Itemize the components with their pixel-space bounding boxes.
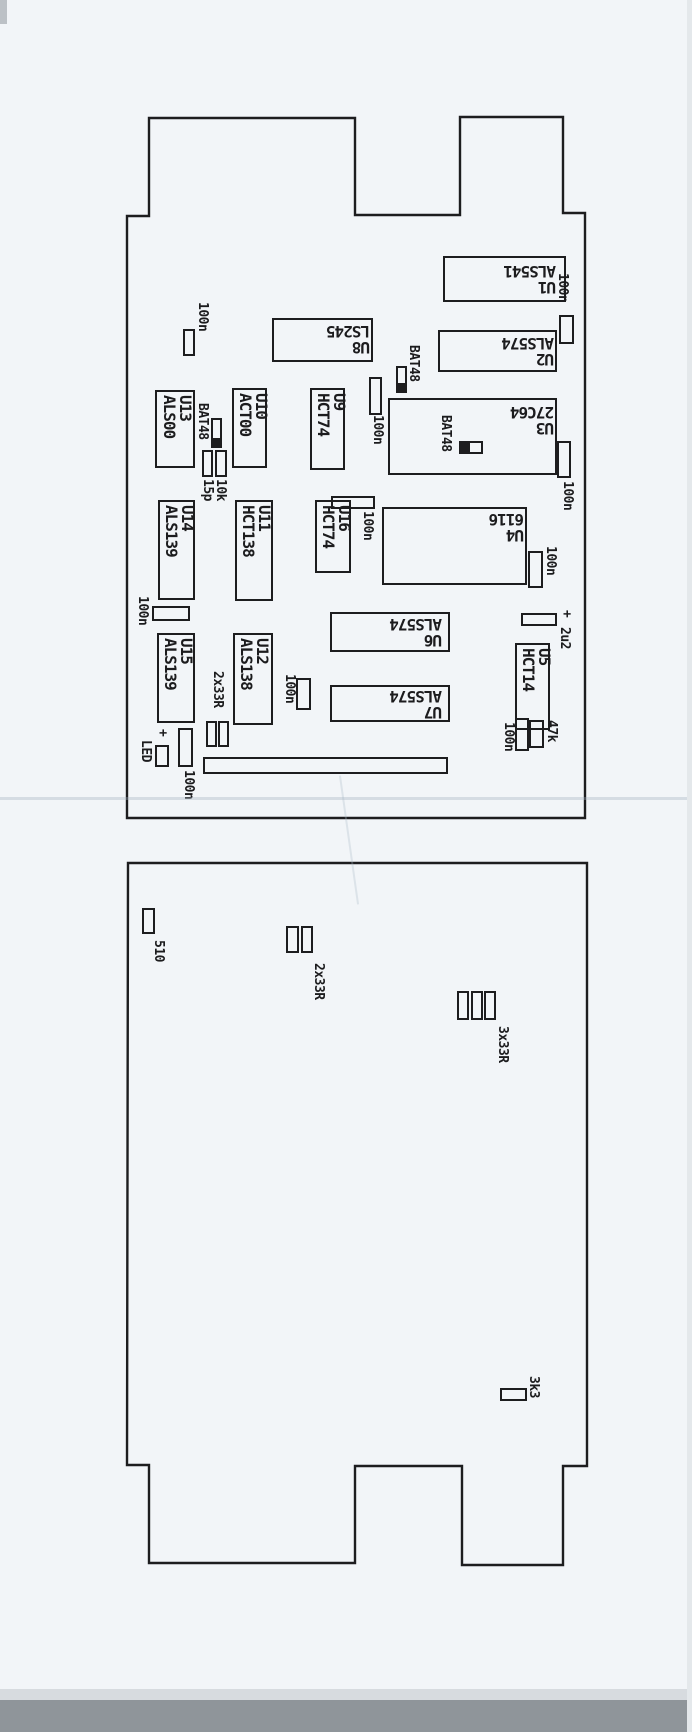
res-2x33r-b-label: 2x33R (312, 963, 325, 1000)
diode-cathode-band (213, 438, 220, 446)
res-2x33r-b-outline-2 (301, 926, 313, 953)
diode-cathode-band (398, 383, 405, 391)
ic-u14-label: U14 ALS139 (163, 505, 195, 557)
led-plus-label: + (156, 729, 169, 736)
cap-100n-3-label: 100n (371, 415, 384, 444)
res-3x33r-label: 3x33R (496, 1026, 509, 1063)
cap-100n-7-label: 100n (544, 546, 557, 575)
res-510-label: 510 (152, 940, 165, 962)
ic-u15-label: U15 ALS139 (162, 638, 194, 690)
ic-u3-label: U3 27C64 (466, 404, 554, 436)
cap-2u2-plus-outline (521, 613, 557, 626)
res-2x33r-outline-2 (218, 721, 229, 747)
ic-u6-label: U6 ALS574 (344, 616, 442, 648)
cap-100n-9-label: 100n (182, 770, 195, 799)
ic-u5-label: U5 HCT14 (520, 648, 552, 691)
ic-u11-label: U11 HCT138 (240, 505, 272, 557)
diode-bat48-3-label: BAT48 (439, 415, 452, 452)
scanned-pcb-placement-drawing: U1 ALS541U2 ALS574U8 LS245U3 27C64U4 611… (0, 0, 692, 1732)
res-2x33r-b-outline-1 (286, 926, 299, 953)
fold-crease (0, 797, 692, 800)
fold-crease-diagonal (339, 775, 359, 904)
cap-100n-2-outline (559, 315, 574, 344)
diode-bat48-1-label: BAT48 (407, 345, 420, 382)
ic-u4-label: U4 6116 (456, 511, 524, 543)
cap-100n-1-outline (183, 329, 195, 356)
res-510-outline (142, 908, 155, 934)
res-2x33r-label: 2x33R (211, 671, 224, 708)
res-3x33r-outline-1 (457, 991, 469, 1020)
cap-100n-5-outline (152, 606, 190, 621)
ic-u13-label: U13 ALS00 (161, 395, 193, 438)
cap-100n-6-label: 100n (361, 511, 374, 540)
ic-u16-label: U16 HCT74 (320, 505, 352, 548)
ic-u10-label: U10 ACT00 (237, 393, 269, 436)
cap-100n-9-outline (178, 728, 193, 767)
edge-connector-outline (203, 757, 448, 774)
cap-100n-2-label: 100n (556, 273, 569, 302)
ic-u7-label: U7 ALS574 (344, 688, 442, 720)
res-3k3-outline (500, 1388, 527, 1401)
cap-100n-8-label: 100n (283, 674, 296, 703)
cap-100n-6-outline (331, 496, 375, 509)
ic-u8-label: U8 LS245 (280, 323, 370, 355)
ic-u9-label: U9 HCT74 (315, 393, 347, 436)
led-label: LED (139, 740, 152, 762)
led-outline (155, 745, 169, 767)
board-outlines (0, 0, 692, 1732)
cap-100n-5-label: 100n (136, 596, 149, 625)
res-47k-outline (529, 720, 544, 748)
diode-bat48-2-label: BAT48 (196, 403, 209, 440)
cap-100n-10-label: 100n (502, 722, 515, 751)
diode-bat48-3-outline (459, 441, 483, 454)
cap-15p-outline (202, 450, 213, 477)
cap-100n-7-outline (528, 551, 543, 588)
res-3x33r-outline-3 (484, 991, 496, 1020)
res-10k-outline (215, 450, 227, 477)
cap-100n-1-label: 100n (196, 302, 209, 331)
ic-u2-label: U2 ALS574 (456, 334, 554, 367)
paper-edge-shadow (0, 1689, 692, 1700)
scanner-edge-top-left (0, 0, 7, 24)
cap-2u2-label: 2u2 (558, 627, 571, 649)
res-3x33r-outline-2 (471, 991, 483, 1020)
cap-2u2-plus-label: + (560, 610, 573, 617)
ic-u12-label: U12 ALS138 (238, 638, 270, 690)
cap-100n-3-outline (369, 377, 382, 415)
res-10k-label: 10k (214, 479, 227, 501)
right-edge-shade (687, 0, 692, 1732)
scanner-bed-strip (0, 1700, 692, 1732)
ic-u1-label: U1 ALS541 (462, 262, 556, 295)
cap-100n-4-label: 100n (561, 481, 574, 510)
res-47k-label: 47k (545, 720, 558, 742)
cap-100n-4-outline (557, 441, 571, 478)
res-2x33r-outline-1 (206, 721, 217, 747)
diode-bat48-2-outline (211, 418, 222, 448)
cap-100n-10-outline (515, 718, 529, 751)
diode-cathode-band (461, 443, 470, 452)
res-3k3-label: 3k3 (527, 1376, 540, 1398)
pcb-bottom-board-outline (127, 863, 587, 1565)
cap-100n-8-outline (296, 678, 311, 710)
